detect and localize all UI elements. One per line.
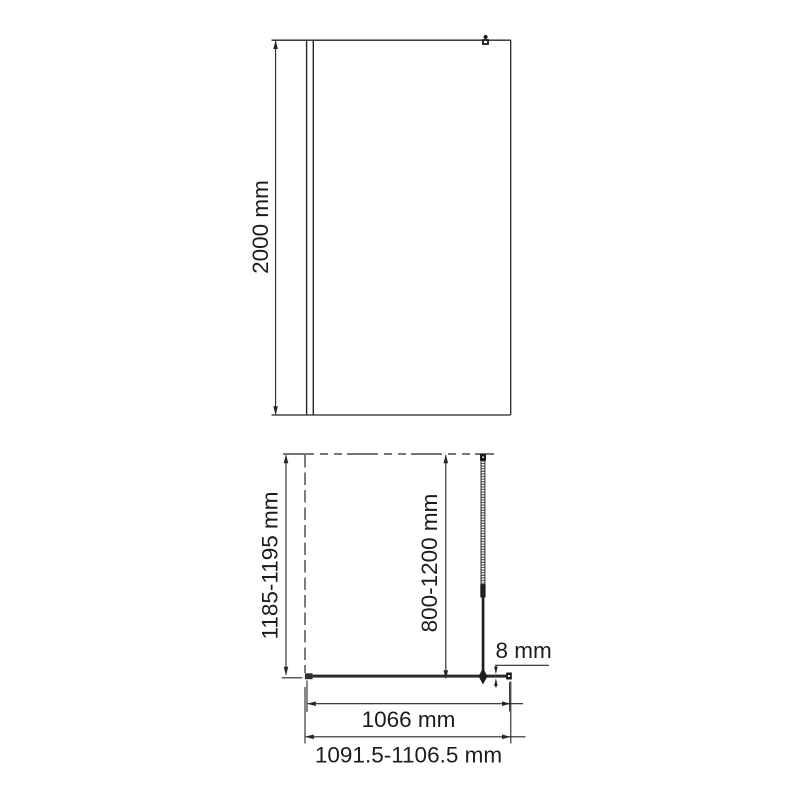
- svg-text:1066 mm: 1066 mm: [362, 707, 456, 732]
- svg-text:800-1200 mm: 800-1200 mm: [417, 494, 442, 633]
- svg-text:1185-1195 mm: 1185-1195 mm: [258, 492, 283, 640]
- svg-text:1091.5-1106.5 mm: 1091.5-1106.5 mm: [315, 743, 502, 768]
- svg-text:2000 mm: 2000 mm: [248, 180, 273, 274]
- svg-text:8 mm: 8 mm: [496, 638, 552, 663]
